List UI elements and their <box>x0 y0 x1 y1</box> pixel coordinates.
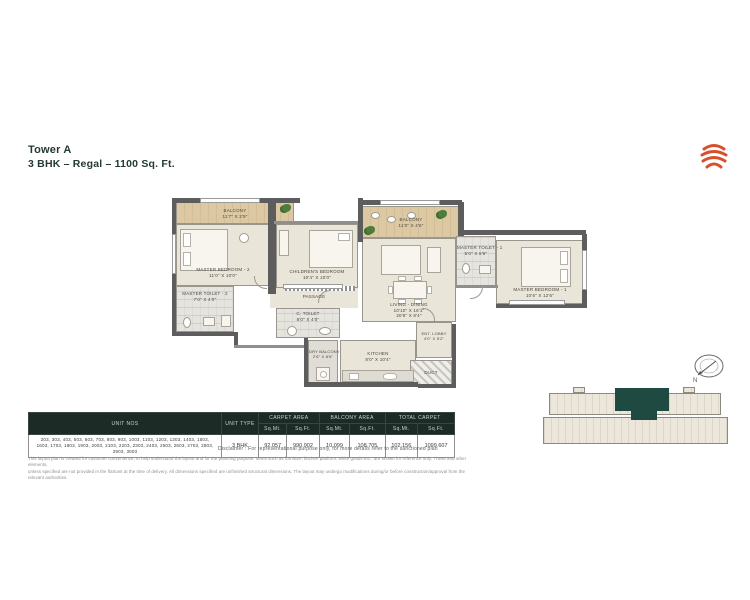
armchair-icon <box>427 247 441 273</box>
wall-segment <box>304 338 308 384</box>
subcol-sqmt: Sq.Mt. <box>319 424 350 435</box>
subcol-sqmt: Sq.Mt. <box>385 424 418 435</box>
room-passage: PASSAGE <box>270 288 358 308</box>
room-label: BALCONY 11'0" X 4'6" <box>363 217 459 228</box>
room-label: MASTER TOILET - 1 5'0" X 8'6" <box>457 245 495 256</box>
wall-segment <box>464 230 586 235</box>
room-common-toilet: C. TOILET 8'0" X 4'0" <box>276 308 340 338</box>
room-label: BALCONY 11'7" X 2'9" <box>177 208 293 219</box>
window <box>172 234 176 274</box>
stool-icon <box>239 233 249 243</box>
washbasin-icon <box>319 327 331 335</box>
room-kitchen: KITCHEN 8'0" X 10'4" <box>340 340 416 384</box>
room-label: CHILDREN'S BEDROOM 10'4" X 10'0" <box>277 269 357 280</box>
wardrobe-icon <box>279 230 289 256</box>
dining-table-icon <box>393 281 427 299</box>
sofa-icon <box>381 245 421 275</box>
wall-segment <box>274 221 360 224</box>
bed-icon <box>180 229 228 271</box>
kitchen-counter-icon <box>342 370 414 382</box>
col-total-carpet: TOTAL CARPET <box>385 413 454 424</box>
fine-print-line: unless specified are not provided in the… <box>28 469 473 482</box>
room-label: DUCT <box>411 370 451 376</box>
room-label: KITCHEN 8'0" X 10'4" <box>341 351 415 362</box>
room-label: MASTER TOILET - 2 7'0" X 4'0" <box>177 291 233 302</box>
page-title: Tower A 3 BHK – Regal – 1100 Sq. Ft. <box>28 144 175 170</box>
key-plan <box>543 383 728 447</box>
wc-icon <box>183 317 191 328</box>
unit-subtitle: 3 BHK – Regal – 1100 Sq. Ft. <box>28 158 175 170</box>
room-childrens-bedroom: CHILDREN'S BEDROOM 10'4" X 10'0" <box>276 224 358 288</box>
room-master-toilet-1: MASTER TOILET - 1 5'0" X 8'6" <box>456 236 496 286</box>
window <box>509 300 565 305</box>
keyplan-protrusion <box>683 387 695 393</box>
subcol-sqft: Sq.Ft. <box>350 424 385 435</box>
room-master-bedroom-1: MASTER BEDROOM - 1 10'6" X 12'6" <box>496 240 584 304</box>
washing-machine-icon <box>316 367 330 381</box>
window <box>283 284 343 289</box>
room-label: ENT. LOBBY 4'0" X 5'2" <box>417 331 451 341</box>
wall-segment <box>234 345 308 348</box>
keyplan-protrusion <box>573 387 585 393</box>
room-master-toilet-2: MASTER TOILET - 2 7'0" X 4'0" <box>176 286 234 332</box>
cell-unit-nos: 203, 303, 403, 503, 603, 703, 803, 903, … <box>29 435 222 458</box>
floorplan-brochure-page: Tower A 3 BHK – Regal – 1100 Sq. Ft. BAL… <box>0 0 750 600</box>
col-unit-nos: UNIT NOS <box>29 413 222 435</box>
col-balcony-area: BALCONY AREA <box>319 413 385 424</box>
room-label: PASSAGE <box>270 294 358 300</box>
room-master-bedroom-2: MASTER BEDROOM - 2 11'0" X 10'0" <box>176 224 270 286</box>
wall-segment <box>452 324 456 388</box>
room-living-dining: LIVING - DINING 10'10" X 16'1" 20'6" X 8… <box>362 238 456 322</box>
wall-segment <box>418 384 456 388</box>
sink-icon <box>203 317 215 326</box>
brand-logo-icon <box>699 143 729 170</box>
keyplan-highlight-unit <box>615 388 669 411</box>
bed-icon <box>521 247 571 287</box>
window <box>582 250 587 290</box>
shower-icon <box>221 315 231 327</box>
bed-icon <box>309 230 353 268</box>
window <box>380 200 440 205</box>
room-label: LIVING - DINING 10'10" X 16'1" 20'6" X 8… <box>363 302 455 319</box>
compass-icon: N <box>690 352 726 386</box>
subcol-sqft: Sq.Ft. <box>418 424 455 435</box>
room-entrance-lobby: ENT. LOBBY 4'0" X 5'2" <box>416 322 452 358</box>
col-unit-type: UNIT TYPE <box>222 413 259 435</box>
door-arc <box>470 286 483 299</box>
wall-segment <box>304 382 418 387</box>
room-label: DRY BALCONY 2'6" X 8'6" <box>309 349 337 359</box>
disclaimer-text: Disclaimer : For representational purpos… <box>218 446 438 452</box>
window <box>200 198 260 203</box>
tower-title: Tower A <box>28 144 175 156</box>
wall-segment <box>172 332 238 336</box>
room-label: MASTER BEDROOM - 1 10'6" X 12'6" <box>497 287 583 298</box>
fine-print: This layout plan is created for customer… <box>28 456 473 482</box>
subcol-sqmt: Sq.Mt. <box>259 424 287 435</box>
keyplan-highlight-unit <box>631 411 657 420</box>
sink-icon <box>479 265 491 274</box>
subcol-sqft: Sq.Ft. <box>287 424 320 435</box>
room-dry-balcony: DRY BALCONY 2'6" X 8'6" <box>308 340 338 384</box>
room-label: MASTER BEDROOM - 2 11'0" X 10'0" <box>177 267 269 278</box>
col-carpet-area: CARPET AREA <box>259 413 320 424</box>
wc-icon <box>287 326 297 336</box>
floor-plan: BALCONY 11'7" X 2'9" MASTER BEDROOM - 2 … <box>170 190 590 395</box>
fine-print-line: This layout plan is created for customer… <box>28 456 473 469</box>
keyplan-wing-bottom <box>543 417 728 444</box>
wc-icon <box>462 263 470 274</box>
room-label: C. TOILET 8'0" X 4'0" <box>277 311 339 322</box>
